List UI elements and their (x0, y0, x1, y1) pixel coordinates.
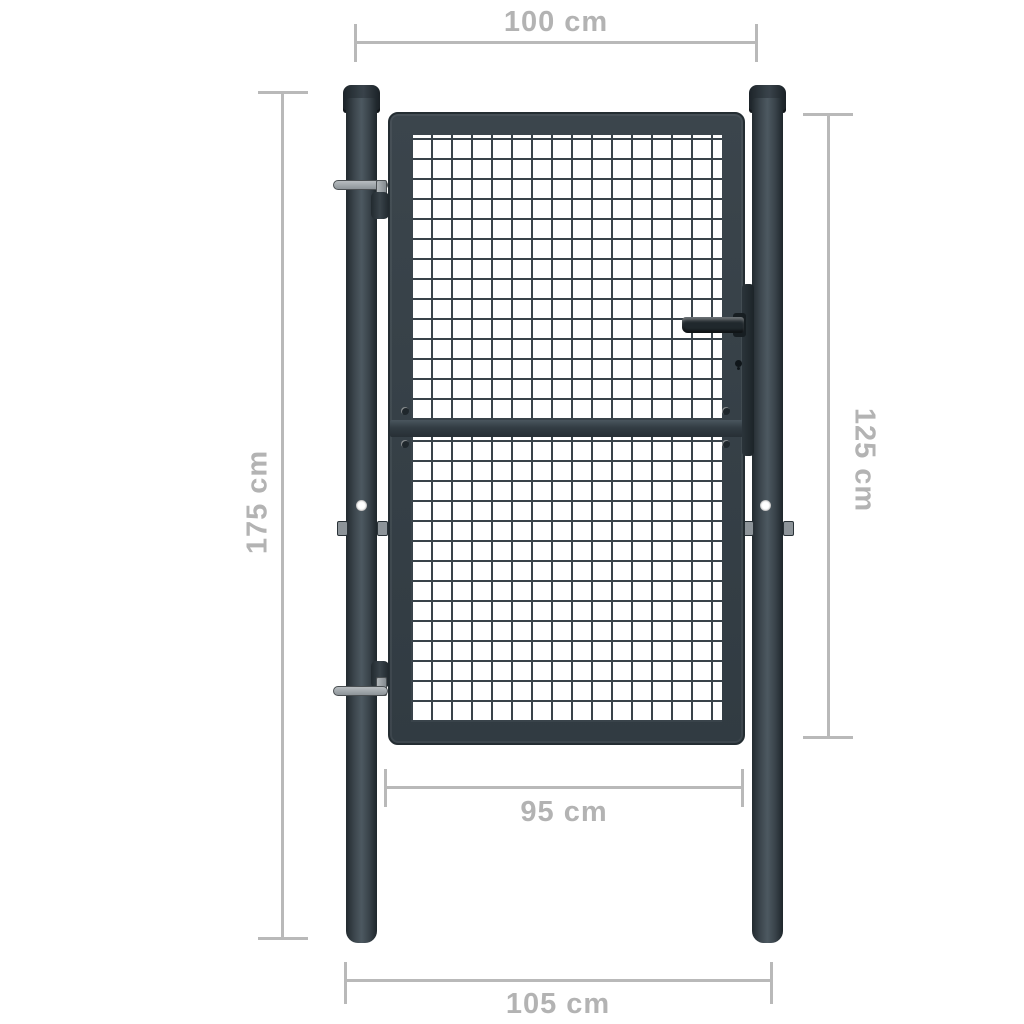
dimension-label-gate-height: 125 cm (848, 408, 881, 512)
dimension-tick (258, 91, 308, 94)
dimension-tick (344, 962, 347, 1004)
product-dimension-diagram: 100 cm 175 cm 125 cm 95 cm 105 cm (0, 0, 1024, 1024)
dimension-label-opening-width: 100 cm (504, 6, 608, 39)
left-post-lug (337, 521, 348, 536)
gate-handle (682, 317, 744, 333)
dimension-tick (258, 937, 308, 940)
mesh-panel-lower (411, 437, 722, 722)
hinge-rod-icon (333, 686, 388, 696)
mounting-bolt (401, 440, 409, 448)
dimension-line-post-height (281, 92, 284, 939)
mesh-panel-upper (411, 135, 722, 420)
mounting-bolt (722, 407, 730, 415)
left-post-lug (377, 521, 388, 536)
keyhole-icon (735, 360, 742, 367)
hinge-sleeve-icon (371, 192, 389, 219)
dimension-tick (803, 736, 853, 739)
right-post (752, 98, 783, 943)
dimension-tick (803, 113, 853, 116)
mounting-bolt (722, 440, 730, 448)
dimension-label-overall-width: 105 cm (506, 988, 610, 1021)
dimension-line-gate-height (827, 114, 830, 739)
lock-plate (742, 284, 754, 456)
middle-rail (390, 420, 743, 437)
right-post-lug (783, 521, 794, 536)
dimension-line-opening-width (354, 41, 758, 44)
right-post-hole (760, 500, 771, 511)
dimension-label-post-height: 175 cm (242, 450, 275, 554)
dimension-tick (770, 962, 773, 1004)
left-post-hole (356, 500, 367, 511)
dimension-label-gate-width: 95 cm (520, 796, 607, 829)
dimension-line-overall-width (344, 979, 773, 982)
mounting-bolt (401, 407, 409, 415)
left-post (346, 98, 377, 943)
dimension-line-gate-width (384, 786, 744, 789)
